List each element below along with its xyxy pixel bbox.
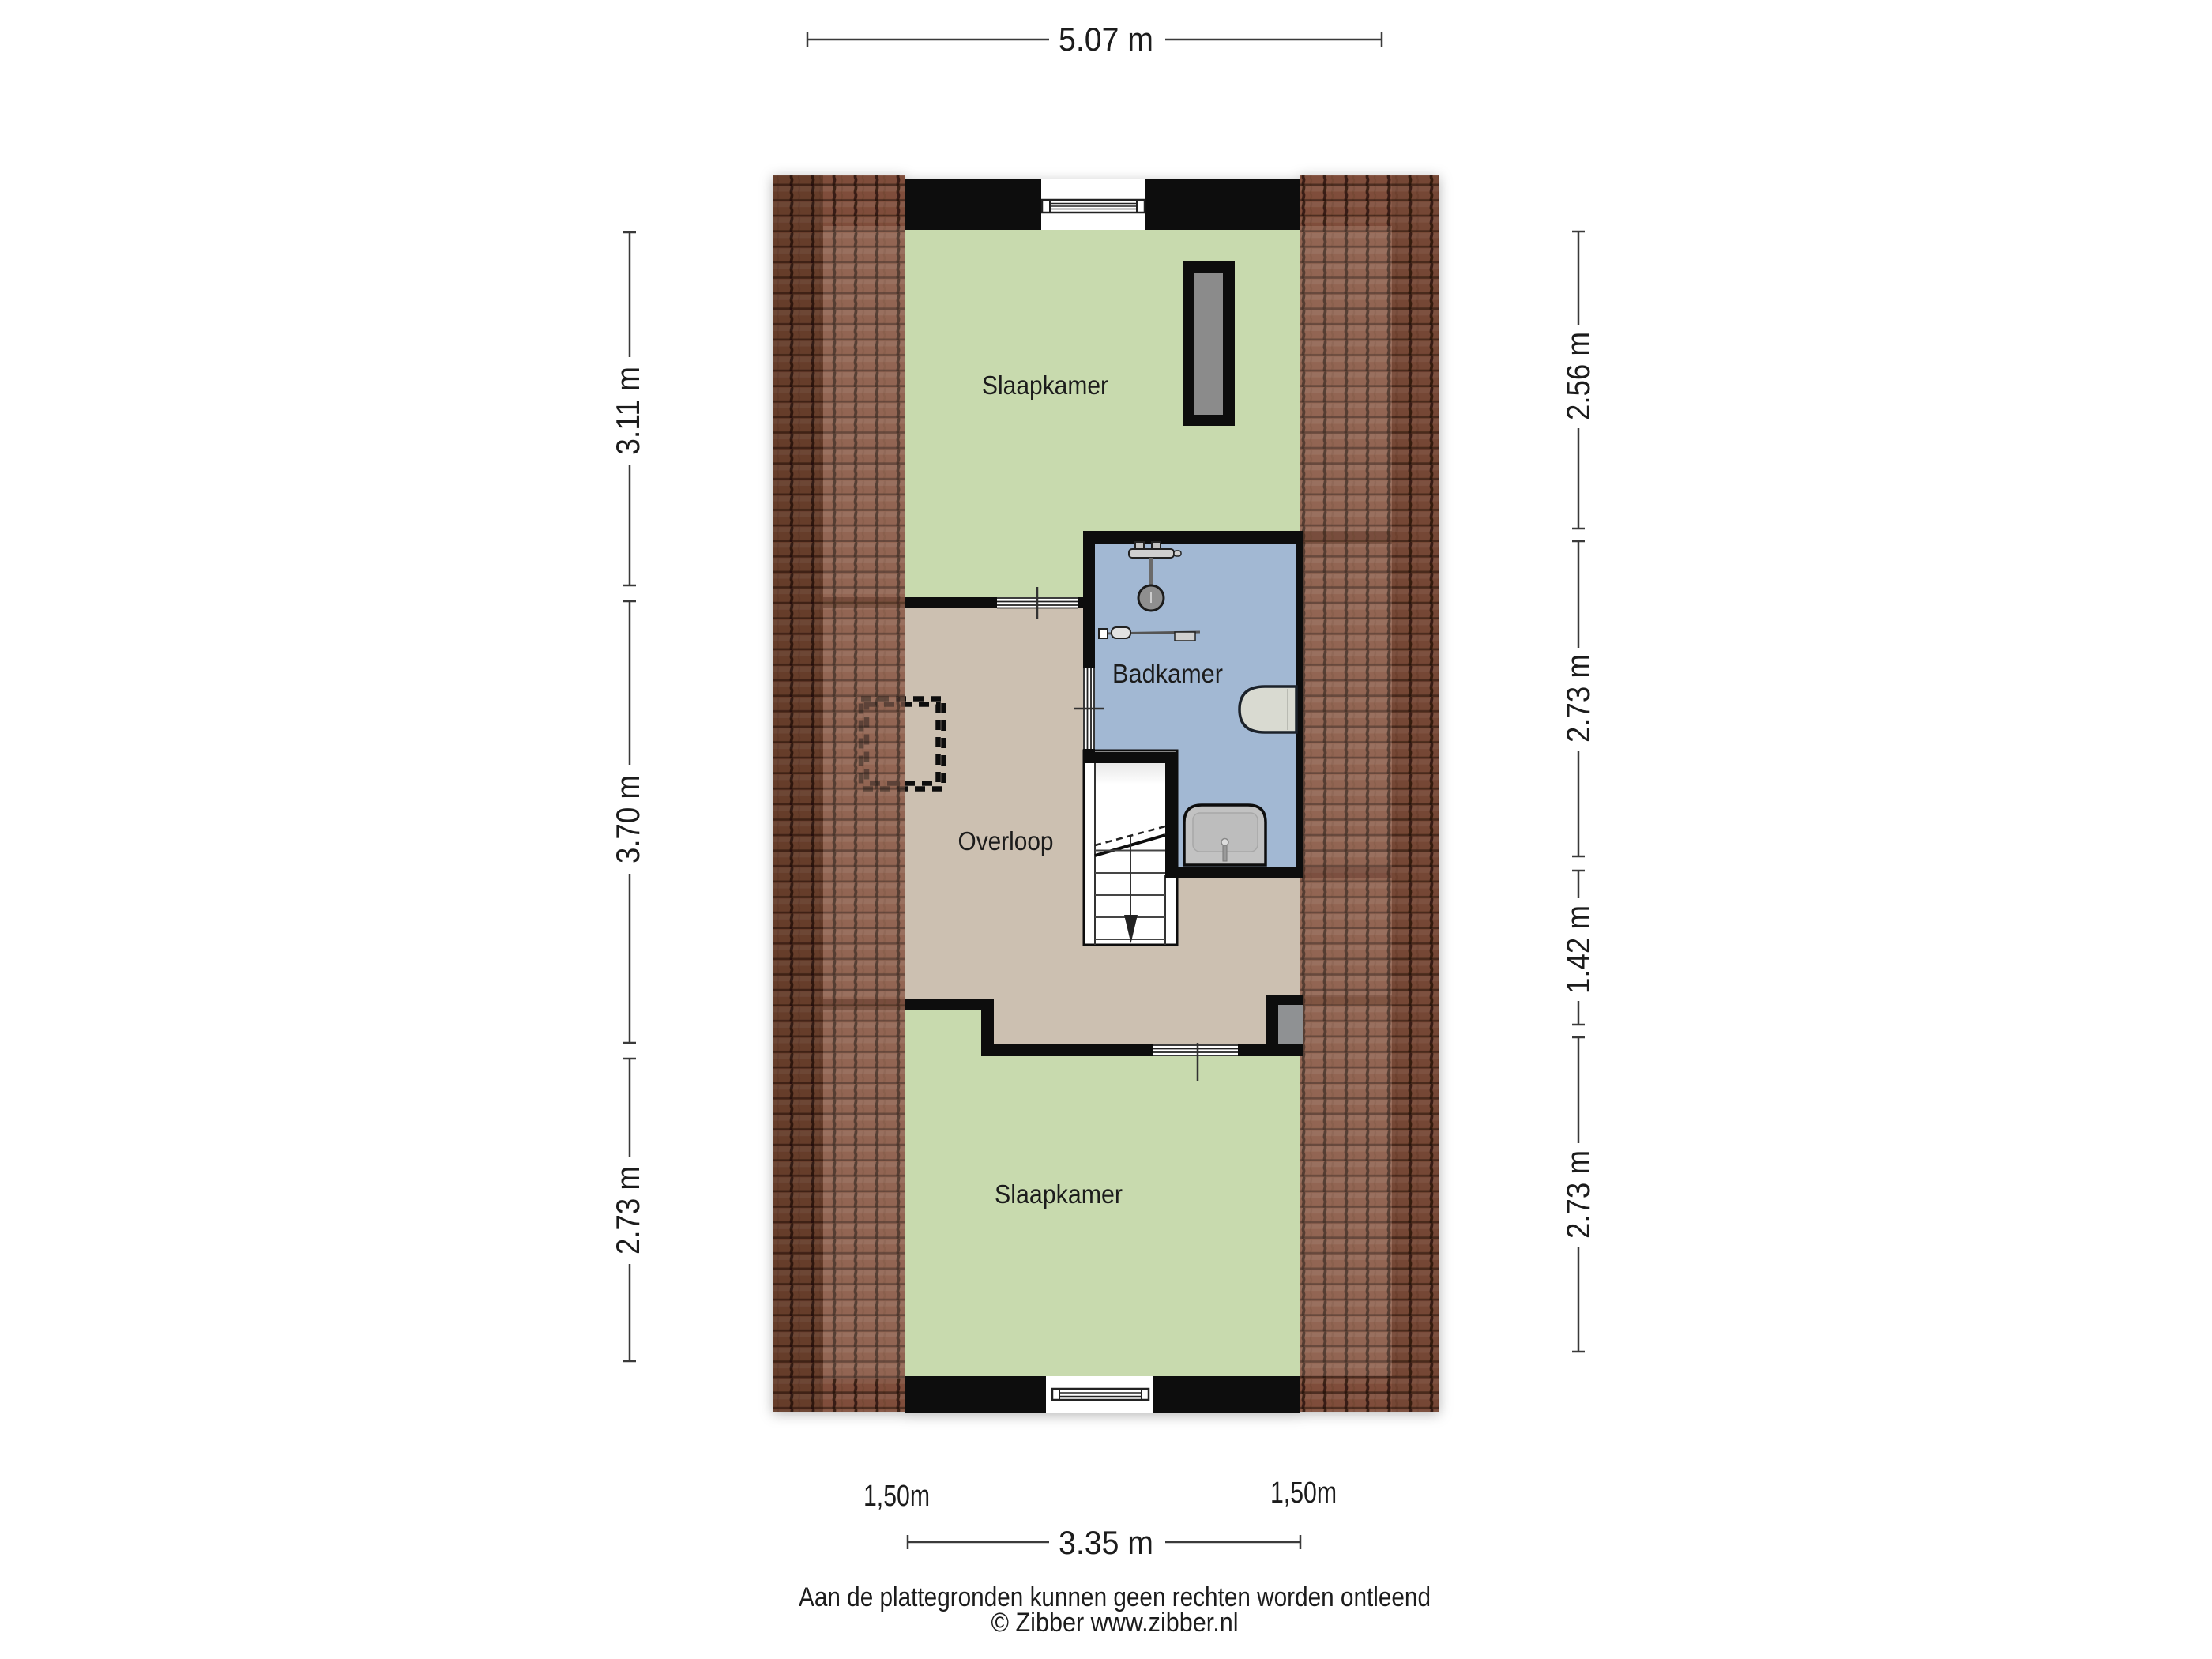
svg-text:2.56 m: 2.56 m <box>1559 332 1597 420</box>
svg-text:3.11 m: 3.11 m <box>609 367 646 455</box>
svg-text:Badkamer: Badkamer <box>1112 659 1223 688</box>
svg-text:2.73 m: 2.73 m <box>1559 654 1597 743</box>
svg-text:5.07 m: 5.07 m <box>1059 21 1153 58</box>
svg-text:Slaapkamer: Slaapkamer <box>982 371 1108 400</box>
svg-text:1.42 m: 1.42 m <box>1559 905 1597 994</box>
svg-text:1,50m: 1,50m <box>863 1480 930 1513</box>
svg-text:3.35 m: 3.35 m <box>1059 1524 1153 1561</box>
svg-text:2.73 m: 2.73 m <box>609 1166 646 1255</box>
svg-text:Slaapkamer: Slaapkamer <box>995 1179 1123 1209</box>
svg-text:Overloop: Overloop <box>958 826 1054 856</box>
svg-text:© Zibber www.zibber.nl: © Zibber www.zibber.nl <box>991 1608 1239 1638</box>
svg-text:3.70 m: 3.70 m <box>609 775 646 863</box>
svg-text:2.73 m: 2.73 m <box>1559 1150 1597 1239</box>
svg-text:1,50m: 1,50m <box>1270 1477 1337 1510</box>
